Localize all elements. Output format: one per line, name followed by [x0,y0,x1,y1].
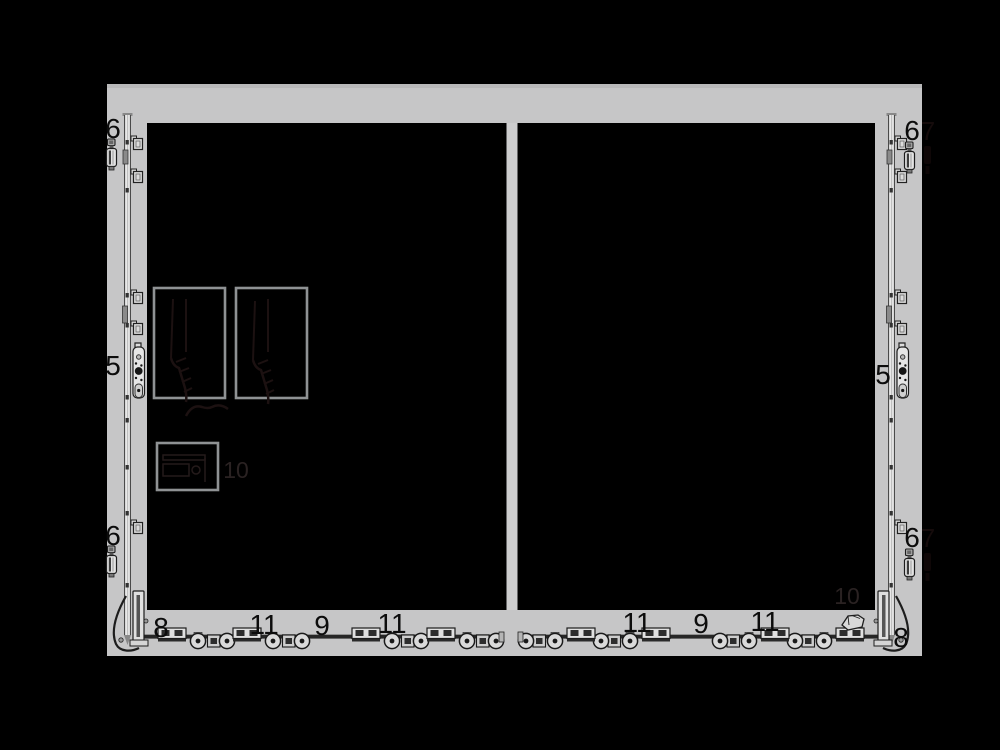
tilt-bolt-bottom-right [905,549,915,580]
part-label-11-right-1: 11 [622,607,651,638]
hidden-hinge-parts [924,146,931,581]
tilt-bolt-top-right [905,142,915,173]
right-casement-pane [517,123,875,610]
part-label-6-bottom-left: 6 [105,520,121,551]
part-label-7-top-right: 7 [921,116,935,146]
part-label-5-left: 5 [105,350,121,381]
part-label-7-bottom-right: 7 [921,523,935,553]
part-label-6-top-right: 6 [904,115,920,146]
diagram-canvas: 6 6 5 6 6 5 8 11 9 11 11 9 11 8 10 10 7 … [0,0,1000,750]
part-label-8-right: 8 [893,622,909,653]
part-label-11-left-1: 11 [249,609,278,640]
part-label-8-left: 8 [153,612,169,643]
part-label-6-bottom-right: 6 [904,522,920,553]
left-casement-pane [147,123,507,610]
part-label-9-left: 9 [314,610,330,641]
part-label-9-right: 9 [693,608,709,639]
part-label-5-right: 5 [875,359,891,390]
part-label-11-left-2: 11 [377,608,406,639]
part-label-11-right-2: 11 [750,606,779,637]
mullion-divider [507,123,518,610]
part-label-6-top-left: 6 [105,113,121,144]
hardware-assembly-diagram: 6 6 5 6 6 5 8 11 9 11 11 9 11 8 10 10 7 … [0,0,1000,750]
part-label-10-left: 10 [223,457,249,483]
frame-top-edge [107,84,922,88]
part-label-10-right: 10 [834,583,860,609]
